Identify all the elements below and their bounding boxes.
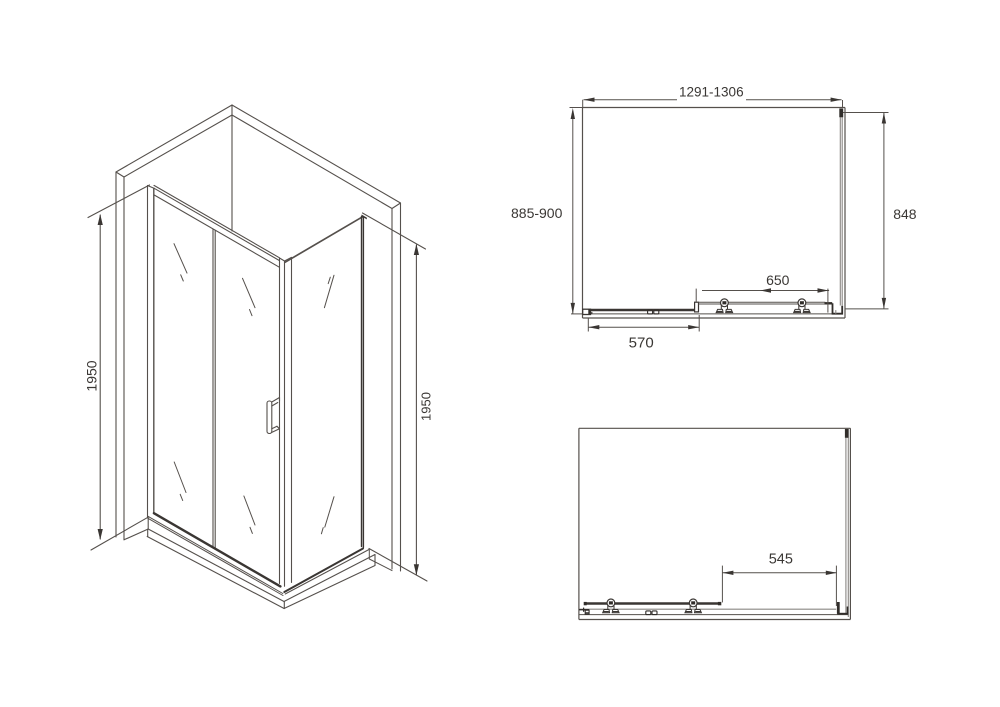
svg-text:570: 570 — [629, 334, 654, 351]
svg-text:1291-1306: 1291-1306 — [679, 85, 744, 100]
svg-text:1950: 1950 — [419, 392, 434, 421]
svg-text:545: 545 — [769, 552, 793, 568]
svg-text:1950: 1950 — [84, 360, 100, 391]
svg-text:885-900: 885-900 — [511, 205, 563, 221]
svg-text:650: 650 — [766, 272, 790, 288]
svg-text:848: 848 — [893, 206, 917, 222]
